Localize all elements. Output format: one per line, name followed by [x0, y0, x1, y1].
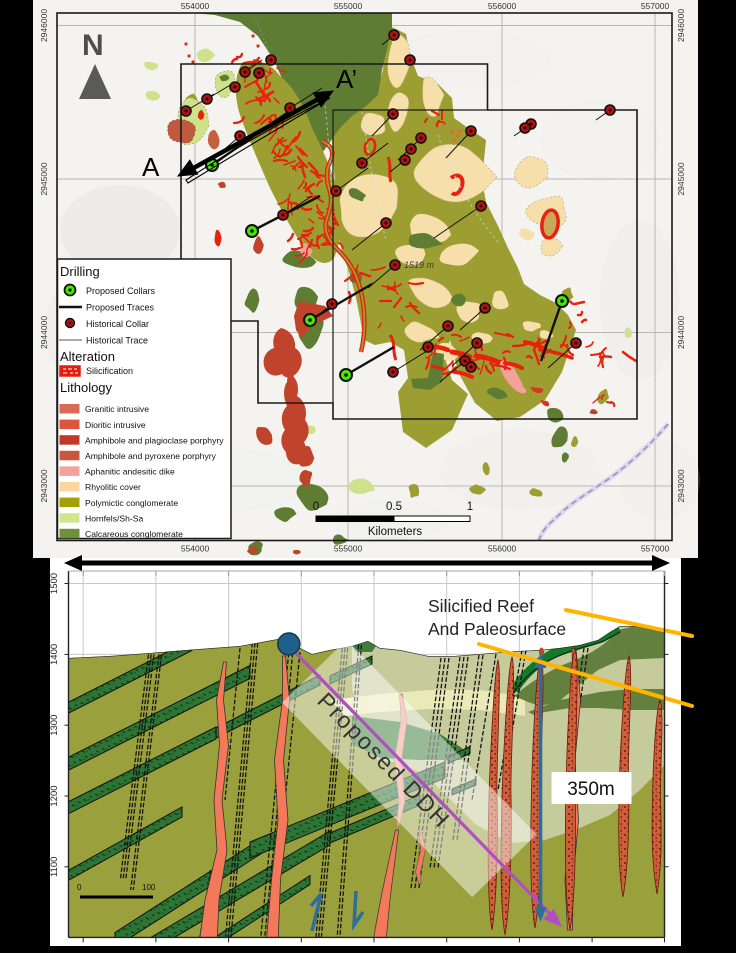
svg-text:Proposed Traces: Proposed Traces: [86, 303, 155, 313]
svg-text:2946000: 2946000: [39, 9, 49, 42]
svg-text:1200: 1200: [49, 785, 60, 806]
svg-text:1519 m: 1519 m: [404, 260, 435, 270]
svg-text:2945000: 2945000: [39, 162, 49, 195]
svg-text:1500: 1500: [49, 573, 60, 594]
svg-text:1400: 1400: [49, 644, 60, 665]
svg-text:A’: A’: [336, 64, 357, 94]
svg-text:Amphibole and plagioclase porp: Amphibole and plagioclase porphyry: [85, 435, 224, 445]
svg-text:100: 100: [142, 883, 156, 892]
svg-text:350m: 350m: [567, 779, 615, 800]
svg-text:556000: 556000: [488, 1, 517, 11]
svg-text:554000: 554000: [181, 1, 210, 11]
svg-text:554000: 554000: [181, 544, 210, 554]
svg-text:Aphanitic andesitic dike: Aphanitic andesitic dike: [85, 467, 175, 477]
svg-text:Historical Collar: Historical Collar: [86, 319, 149, 329]
svg-text:2946000: 2946000: [676, 9, 686, 42]
svg-text:Amphibole and pyroxene porphyr: Amphibole and pyroxene porphyry: [85, 451, 217, 461]
svg-text:Dioritic intrusive: Dioritic intrusive: [85, 420, 146, 430]
svg-text:Proposed Collars: Proposed Collars: [86, 286, 156, 296]
svg-text:Lithology: Lithology: [60, 380, 113, 395]
svg-text:Alteration: Alteration: [60, 349, 115, 364]
svg-text:Calcareous conglomerate: Calcareous conglomerate: [85, 529, 183, 539]
svg-text:1: 1: [467, 501, 473, 513]
svg-text:1300: 1300: [49, 715, 60, 736]
svg-text:2944000: 2944000: [39, 316, 49, 349]
svg-text:556000: 556000: [488, 544, 517, 554]
svg-text:N: N: [82, 29, 104, 62]
svg-text:And Paleosurface: And Paleosurface: [428, 619, 566, 639]
svg-text:2945000: 2945000: [676, 162, 686, 195]
svg-text:Drilling: Drilling: [60, 264, 100, 279]
svg-text:A: A: [142, 152, 160, 182]
svg-text:557000: 557000: [641, 1, 670, 11]
svg-text:557000: 557000: [641, 544, 670, 554]
svg-text:2943000: 2943000: [676, 469, 686, 502]
svg-text:555000: 555000: [334, 544, 363, 554]
svg-text:Historical Trace: Historical Trace: [86, 336, 148, 346]
svg-text:2944000: 2944000: [676, 316, 686, 349]
svg-text:555000: 555000: [334, 1, 363, 11]
svg-text:2943000: 2943000: [39, 469, 49, 502]
svg-text:Silicification: Silicification: [86, 366, 133, 376]
svg-text:Rhyolitic cover: Rhyolitic cover: [85, 482, 141, 492]
svg-text:0.5: 0.5: [386, 501, 402, 513]
svg-text:Polymictic conglomerate: Polymictic conglomerate: [85, 498, 178, 508]
svg-text:1100: 1100: [49, 857, 60, 877]
svg-text:Granitic intrusive: Granitic intrusive: [85, 404, 149, 414]
svg-text:0: 0: [77, 883, 82, 892]
svg-text:0: 0: [313, 501, 319, 513]
svg-text:Kilometers: Kilometers: [368, 526, 423, 538]
svg-text:Hornfels/Sh-Sa: Hornfels/Sh-Sa: [85, 513, 143, 523]
svg-text:Silicified Reef: Silicified Reef: [428, 596, 534, 616]
